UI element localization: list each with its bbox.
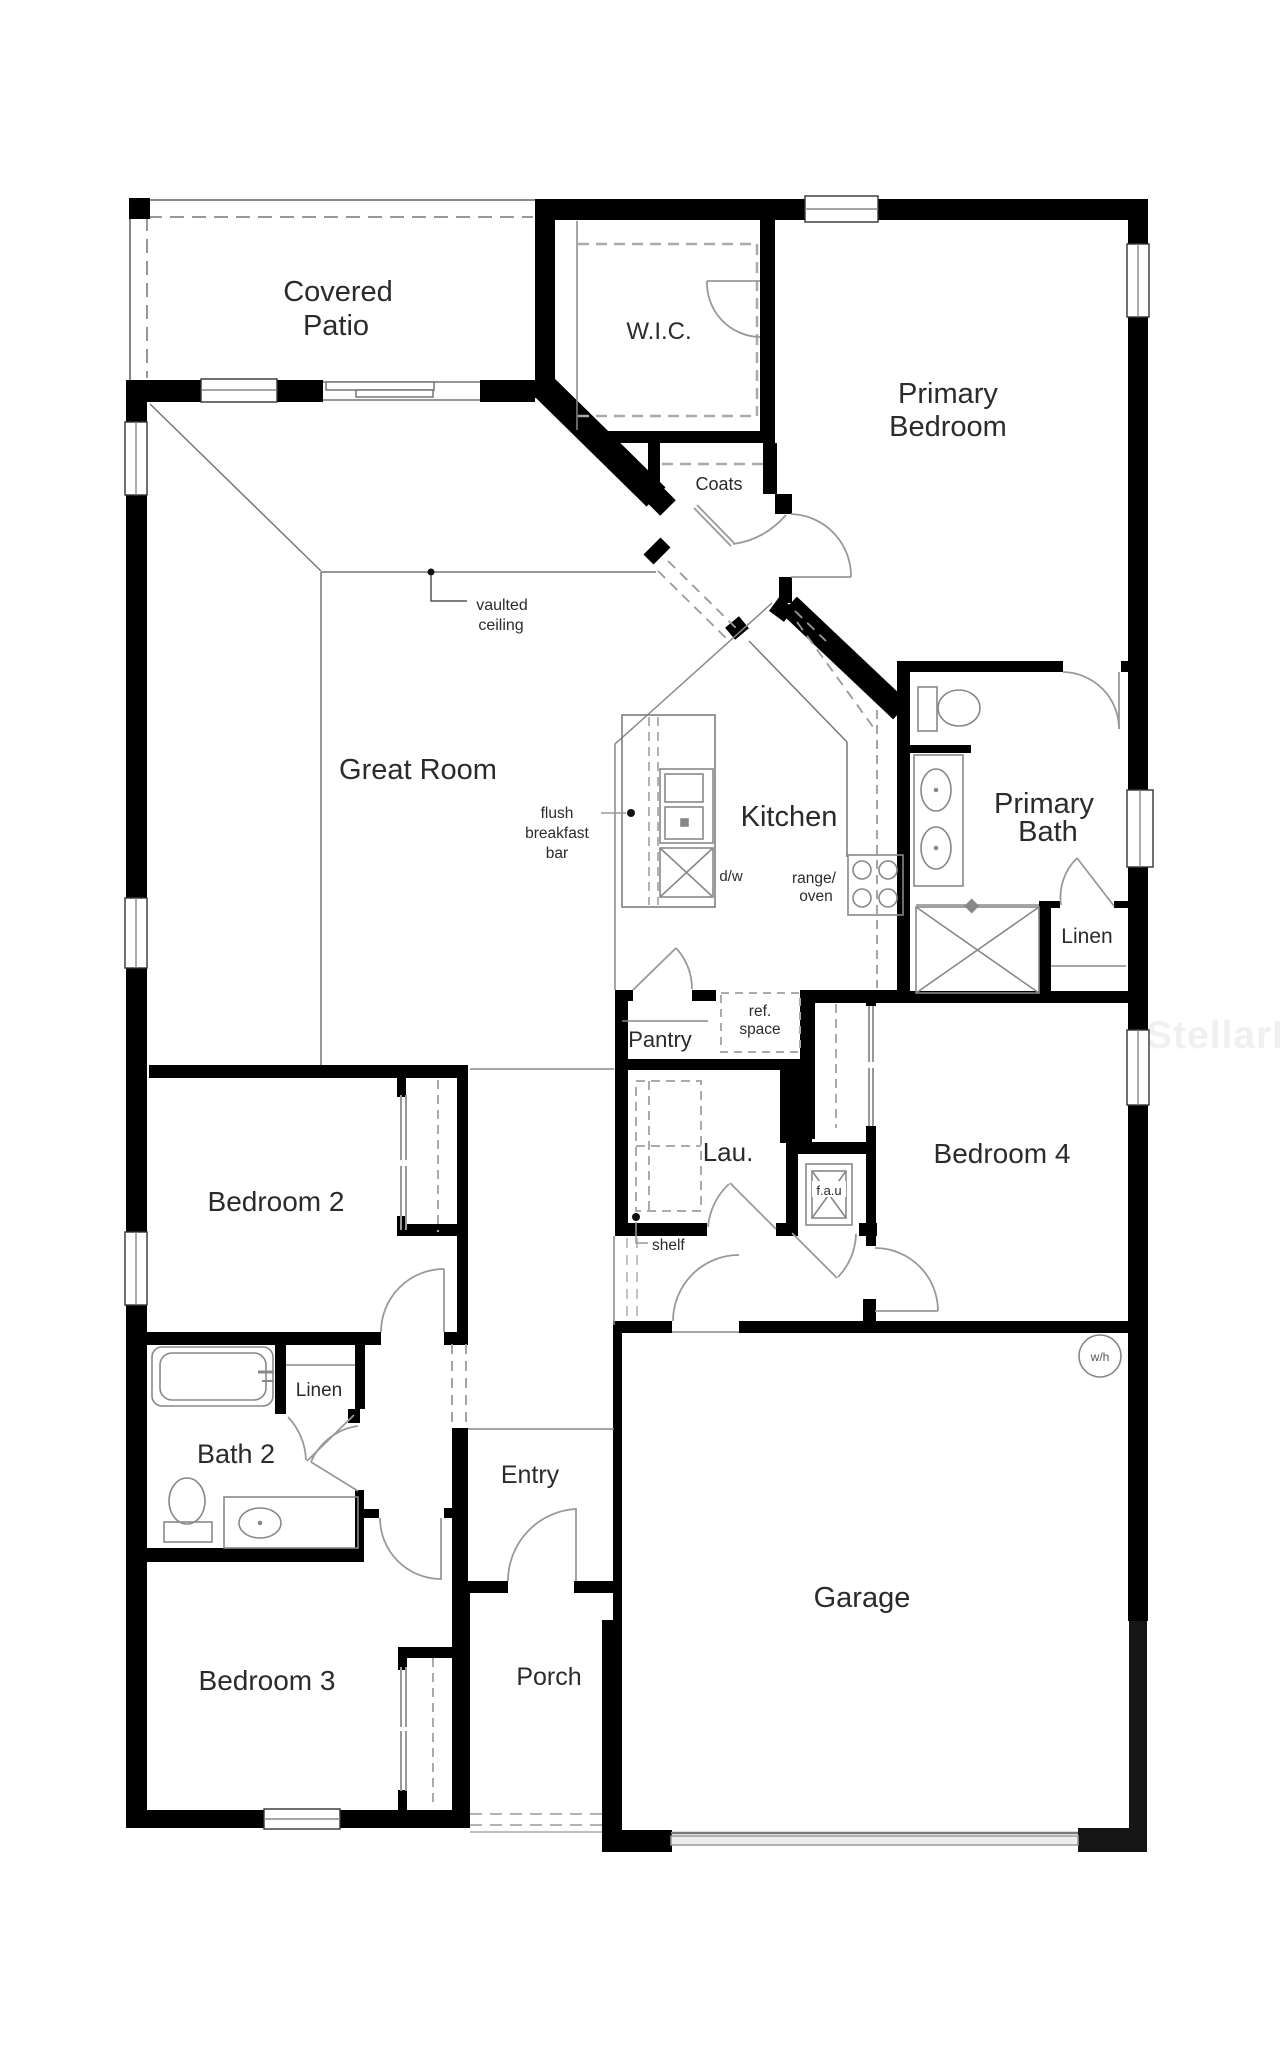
svg-text:Great Room: Great Room — [339, 754, 497, 786]
svg-text:Porch: Porch — [516, 1663, 581, 1691]
svg-text:f.a.u: f.a.u — [816, 1183, 841, 1198]
svg-text:Linen: Linen — [296, 1380, 343, 1401]
svg-text:space: space — [739, 1021, 780, 1038]
svg-text:range/: range/ — [792, 870, 837, 887]
svg-text:Bath 2: Bath 2 — [197, 1439, 275, 1469]
svg-text:Bedroom 2: Bedroom 2 — [208, 1186, 345, 1217]
svg-text:Coats: Coats — [695, 474, 742, 494]
svg-text:bar: bar — [546, 845, 568, 862]
svg-text:d/w: d/w — [719, 868, 743, 885]
svg-text:flush: flush — [541, 805, 574, 822]
svg-text:ref.: ref. — [749, 1003, 771, 1020]
svg-text:Kitchen: Kitchen — [741, 801, 838, 833]
svg-text:Garage: Garage — [814, 1582, 911, 1614]
svg-text:Bedroom: Bedroom — [889, 411, 1007, 443]
svg-text:w/h: w/h — [1090, 1350, 1110, 1364]
svg-text:vaulted: vaulted — [476, 597, 528, 614]
svg-text:Bedroom 3: Bedroom 3 — [199, 1665, 336, 1696]
svg-text:Pantry: Pantry — [628, 1027, 692, 1052]
svg-text:W.I.C.: W.I.C. — [626, 318, 691, 345]
svg-text:breakfast: breakfast — [525, 825, 589, 842]
svg-text:Linen: Linen — [1061, 925, 1112, 948]
svg-text:Bath: Bath — [1018, 816, 1078, 848]
svg-text:Covered: Covered — [283, 276, 393, 308]
svg-text:Bedroom 4: Bedroom 4 — [934, 1138, 1071, 1169]
svg-text:Lau.: Lau. — [703, 1137, 754, 1167]
svg-text:Patio: Patio — [303, 310, 369, 342]
svg-text:StellarMLS: StellarMLS — [1146, 1014, 1280, 1057]
svg-text:oven: oven — [799, 888, 833, 905]
svg-text:shelf: shelf — [652, 1237, 685, 1254]
svg-text:ceiling: ceiling — [478, 617, 523, 634]
svg-text:Primary: Primary — [898, 378, 998, 410]
svg-text:Entry: Entry — [501, 1461, 560, 1489]
